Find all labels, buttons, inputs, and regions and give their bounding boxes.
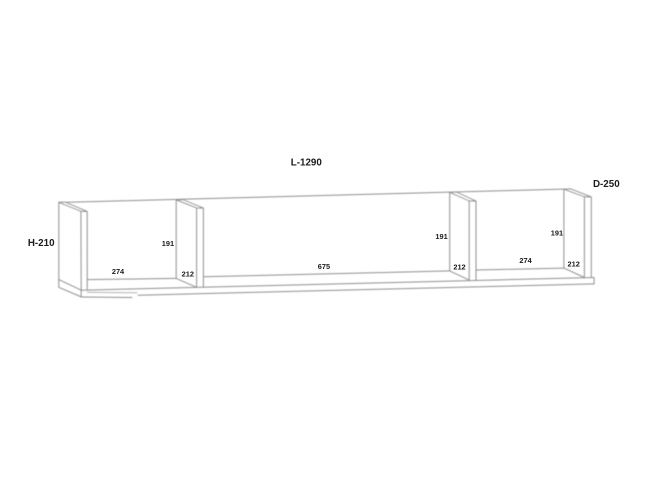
- svg-text:191: 191: [551, 229, 563, 238]
- svg-text:D-250: D-250: [593, 179, 620, 190]
- svg-text:274: 274: [519, 256, 532, 265]
- svg-text:675: 675: [318, 262, 330, 271]
- svg-text:L-1290: L-1290: [291, 157, 323, 168]
- svg-text:274: 274: [112, 267, 125, 276]
- svg-text:H-210: H-210: [28, 238, 55, 249]
- svg-text:212: 212: [568, 260, 580, 269]
- svg-text:191: 191: [162, 239, 174, 248]
- svg-text:191: 191: [435, 232, 447, 241]
- svg-text:212: 212: [453, 263, 465, 272]
- svg-text:212: 212: [182, 270, 194, 279]
